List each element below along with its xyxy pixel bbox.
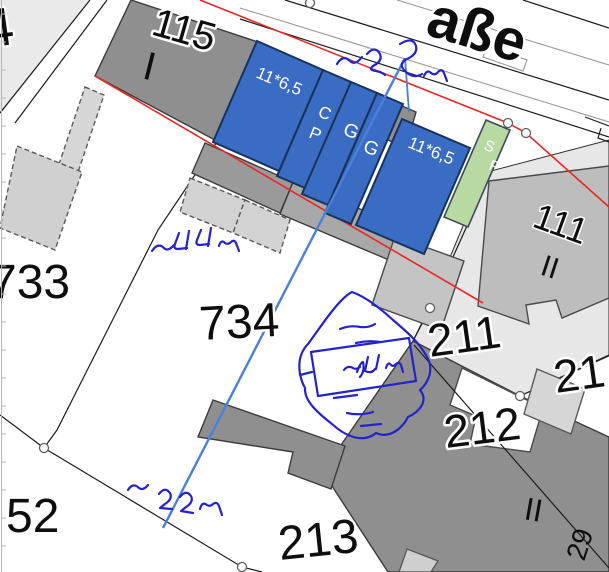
street-name: aße [420, 0, 535, 76]
vertex-handle[interactable] [426, 304, 435, 313]
vertex-handle[interactable] [522, 129, 531, 138]
parcel-52-label: 52 [6, 490, 59, 543]
building-213-strip [198, 400, 345, 489]
map-canvas[interactable]: aße 4 115 I 733 734 52 213 211 212 21 11… [0, 0, 609, 572]
street-top-corner-line [523, 0, 609, 28]
vertex-handle[interactable] [306, 0, 315, 8]
ink-note-left [152, 228, 239, 251]
vertex-handle[interactable] [238, 563, 247, 572]
parcel-211-label: 211 [424, 305, 504, 367]
vertex-handle[interactable] [504, 119, 513, 128]
parcel-734-label: 734 [198, 294, 281, 351]
parcel-21-label: 21 [550, 344, 608, 403]
ink-note-bottom [128, 485, 222, 515]
measure-line-tick [405, 58, 409, 112]
parcel-213-label: 213 [276, 510, 361, 571]
parcel-212-label: 212 [441, 397, 524, 458]
vertex-handle[interactable] [40, 444, 49, 453]
cadastral-map: aße 4 115 I 733 734 52 213 211 212 21 11… [0, 0, 609, 572]
parcel-733-label: 733 [0, 256, 70, 309]
